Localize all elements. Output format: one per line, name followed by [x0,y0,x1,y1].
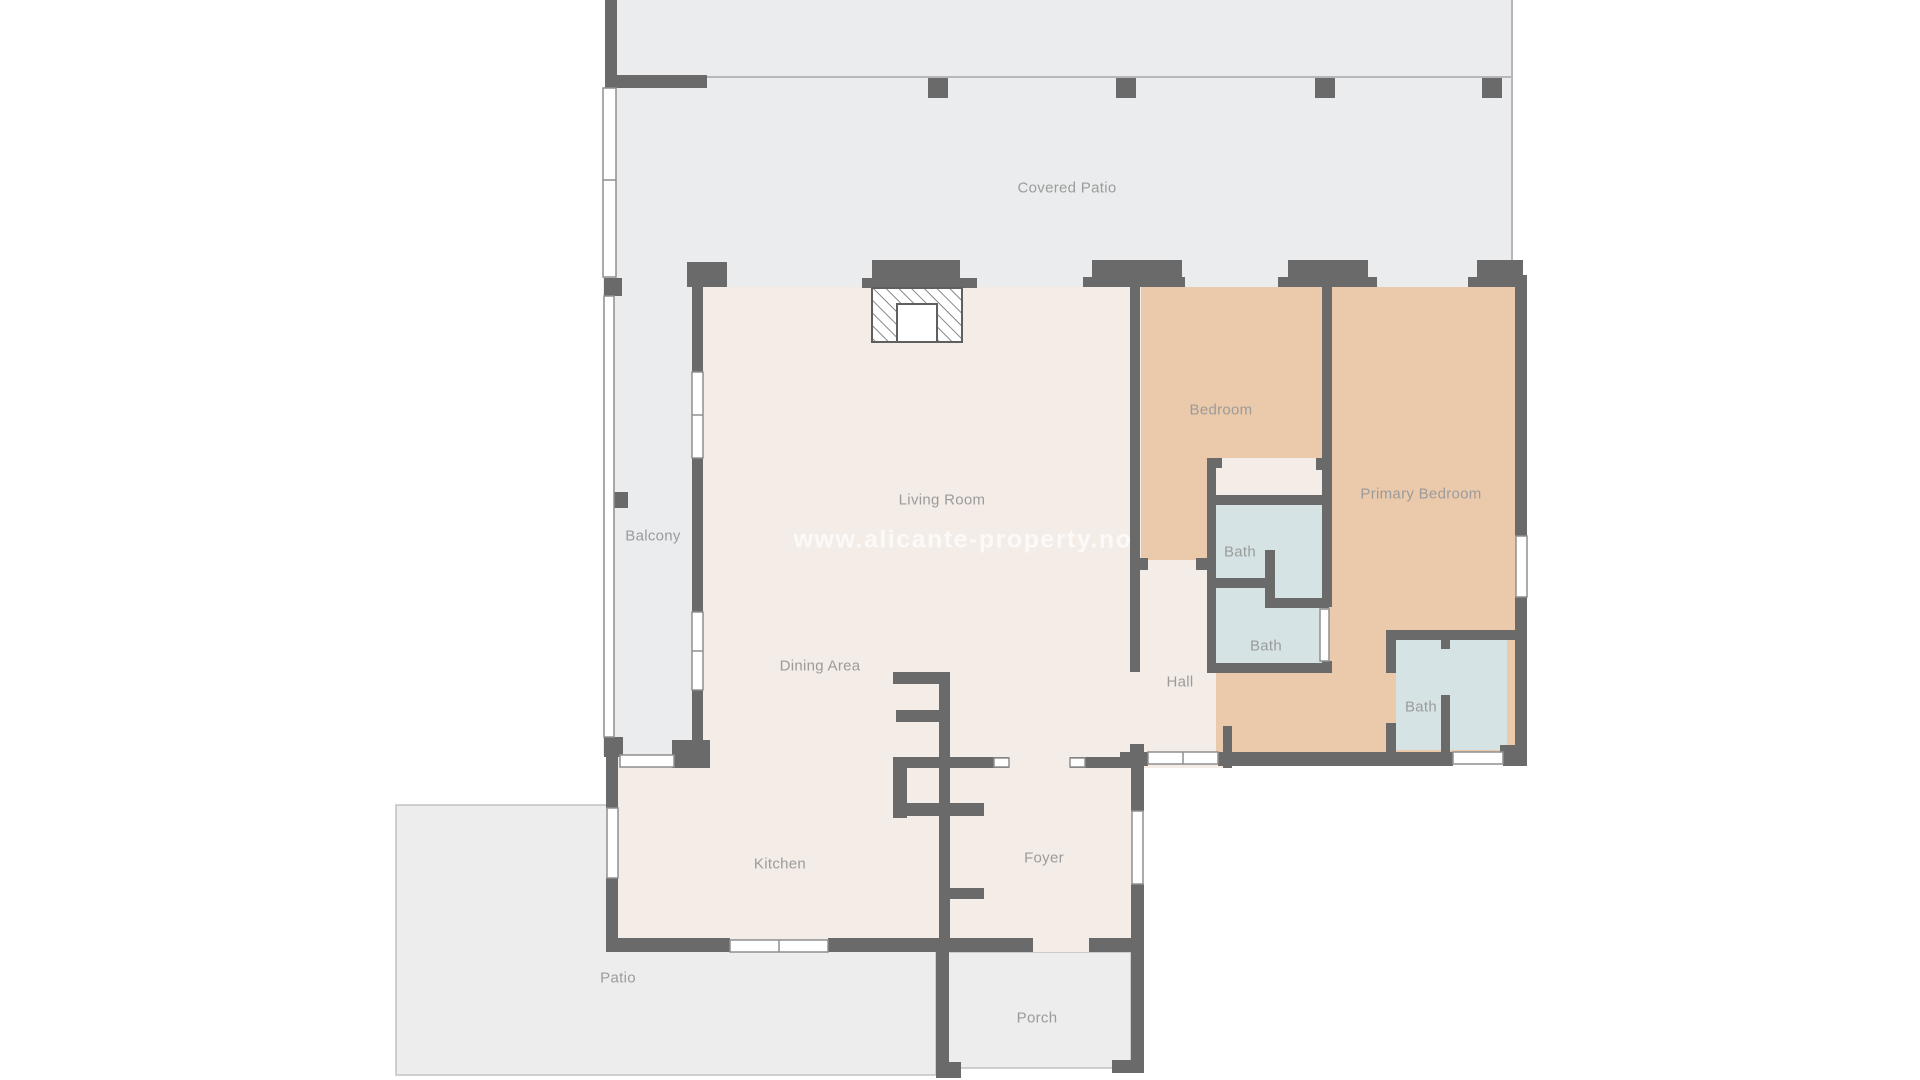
room-label-covered-patio: Covered Patio [1018,180,1117,197]
room-label-balcony: Balcony [625,528,680,545]
bath-door-leaf [1320,609,1329,661]
balcony-rail [604,296,614,737]
room-label-living-room: Living Room [899,492,986,509]
watermark: www.alicante-property.no [794,526,1133,555]
pillar [1116,78,1136,98]
balcony-door [620,755,674,767]
pillar [928,78,948,98]
room-label-primary-bedroom: Primary Bedroom [1360,486,1481,503]
door-jamb [1070,758,1085,767]
room-label-bath-upper: Bath [1224,544,1256,561]
pillar [1482,78,1502,98]
foyer-window [1132,811,1143,884]
bath-lower-floor [1396,640,1507,750]
room-label-kitchen: Kitchen [754,856,806,873]
room-label-porch: Porch [1017,1010,1058,1027]
room-label-foyer: Foyer [1024,850,1064,867]
fireplace-firebox [897,304,937,342]
pillar [1315,78,1335,98]
balcony-floor [603,87,703,755]
room-label-dining-area: Dining Area [780,658,861,675]
suite-window [1453,752,1503,764]
room-label-bedroom: Bedroom [1190,402,1253,419]
door-jamb [994,758,1009,767]
suite-corridor-floor [1216,668,1386,757]
fireplace [862,260,977,342]
balcony-window [603,88,616,277]
kitchen-floor [606,755,940,952]
kitchen-window [607,808,618,878]
room-label-hall: Hall [1166,674,1193,691]
room-label-bath-lower: Bath [1405,699,1437,716]
floor-plan: Covered Patio Balcony Living Room Bedroo… [0,0,1920,1080]
covered-patio-floor [615,0,1513,287]
primary-window [1516,536,1527,597]
room-label-patio: Patio [600,970,636,987]
room-label-bath-middle: Bath [1250,638,1282,655]
